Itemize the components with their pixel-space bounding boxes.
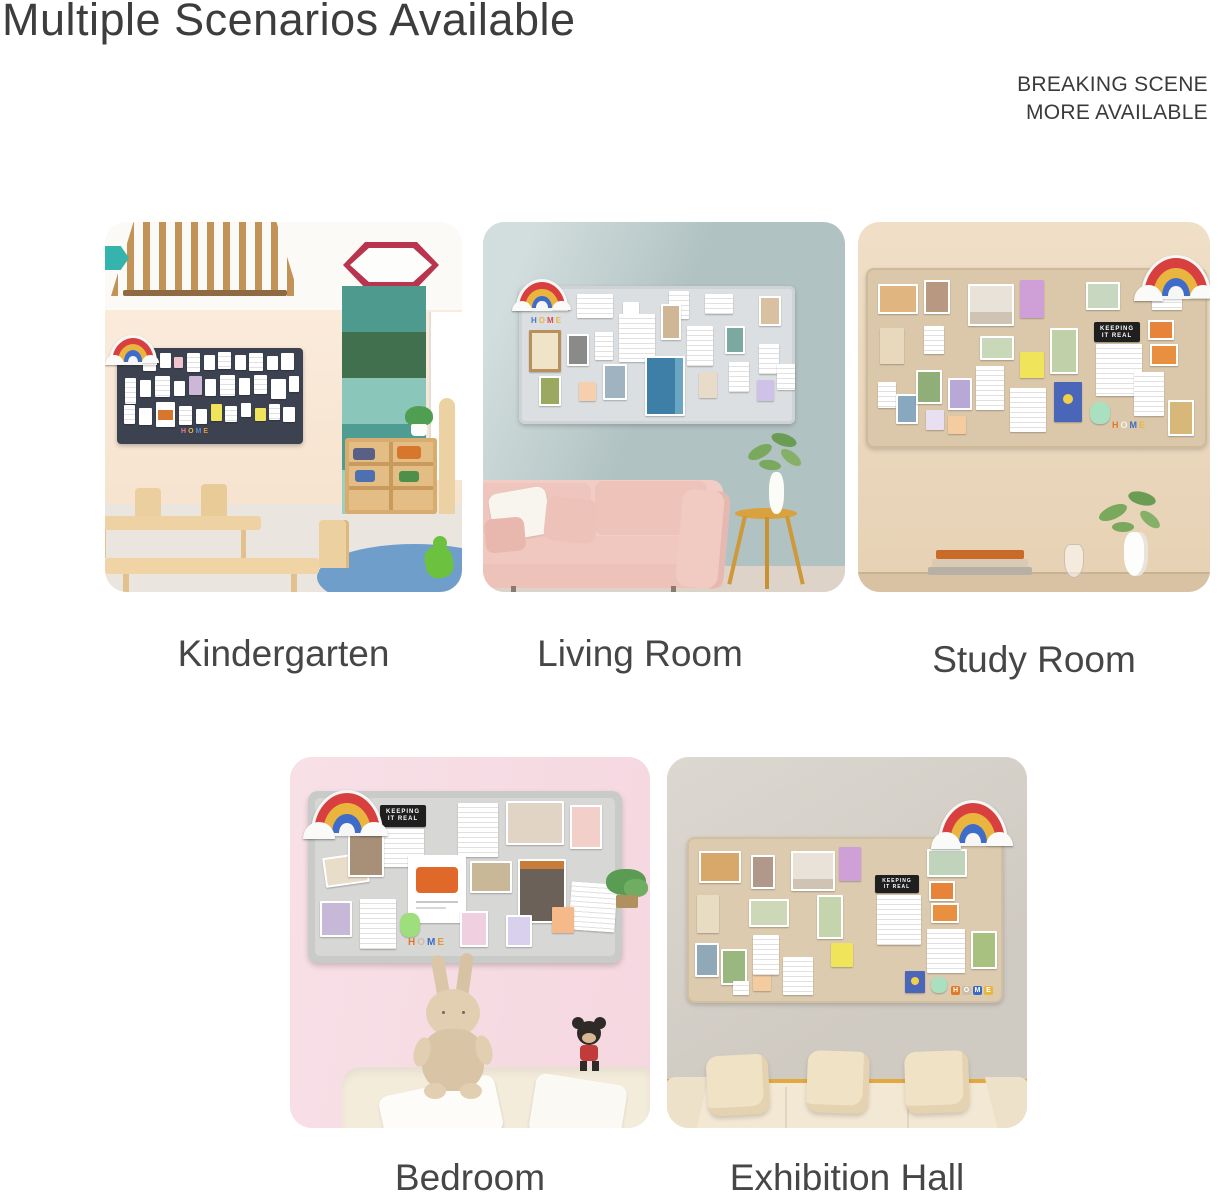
chair [319, 520, 349, 568]
pinned-card [241, 403, 251, 417]
pinned-card [880, 328, 904, 364]
bunny-plush [416, 979, 496, 1099]
pinned-photo [1050, 328, 1078, 374]
home-letters: HOME [951, 979, 995, 997]
home-letters: HOME [1112, 420, 1147, 430]
ghost-sticker [931, 977, 947, 993]
pinned-card [757, 380, 774, 401]
pinned-photo [603, 364, 627, 400]
pinned-card [619, 314, 655, 362]
pinned-card [1134, 372, 1164, 416]
pinned-photo [924, 280, 950, 314]
pinned-card [220, 375, 235, 396]
pinned-photo [759, 296, 781, 326]
book-stack [928, 550, 1032, 576]
sticky-note [948, 416, 966, 434]
product-image-canvas: Multiple Scenarios Available BREAKING SC… [0, 0, 1225, 1200]
toy-car [399, 471, 419, 482]
pinned-card [577, 294, 613, 318]
pinned-card [235, 355, 246, 370]
pinned-photo [721, 949, 747, 985]
toy-car [353, 448, 375, 460]
potted-plant [401, 406, 437, 440]
pinned-card [753, 935, 779, 975]
pinned-card [124, 405, 135, 424]
toy-car [355, 470, 375, 482]
pinned-photo [1086, 282, 1120, 310]
caption-exhibition-hall: Exhibition Hall [660, 1157, 1034, 1199]
sticky-note [552, 907, 574, 933]
scenario-photo-living-room: HOME [483, 222, 845, 592]
felt-board: HOME [519, 286, 795, 424]
page-title: Multiple Scenarios Available [2, 0, 576, 46]
felt-board: HOME [117, 348, 303, 444]
letter-board-sign: KEEPINGIT REAL [380, 805, 426, 827]
ghost-sticker [1090, 402, 1110, 424]
desk-surface [858, 574, 1210, 592]
pinned-card [187, 353, 200, 372]
pinned-card [125, 378, 136, 404]
pinned-card [156, 402, 175, 427]
kids-table [105, 558, 319, 592]
pink-pillow [484, 516, 527, 553]
green-toy-figure [423, 536, 459, 580]
pinned-card [189, 376, 202, 395]
corner-note-line1: BREAKING SCENE [1017, 71, 1208, 99]
pinned-card [687, 326, 713, 366]
pinned-photo [539, 376, 561, 406]
pinned-photo [927, 849, 967, 877]
pink-pillow [543, 495, 599, 544]
pinned-card [218, 352, 231, 369]
pinned-card [733, 981, 749, 995]
rainbow-sticker-icon [519, 282, 565, 308]
pinned-photo [896, 394, 918, 424]
throw-blanket [675, 488, 731, 590]
pinned-card [924, 326, 944, 354]
pinned-card [283, 407, 295, 422]
vase-with-plant [1094, 488, 1164, 576]
framed-card [529, 330, 561, 372]
pinned-card [458, 803, 498, 857]
pinned-card [196, 409, 207, 424]
home-letters: HOME [531, 316, 563, 325]
sticky-note [211, 404, 222, 421]
pinned-photo [968, 284, 1014, 326]
pinned-card [905, 971, 925, 993]
pinned-photo [695, 943, 719, 977]
pinned-photo [817, 895, 843, 939]
pinned-card [360, 899, 396, 949]
pinned-card [174, 381, 185, 396]
corner-note-line2: MORE AVAILABLE [1017, 99, 1208, 127]
pinned-card [777, 364, 795, 390]
pinned-card [1150, 344, 1178, 366]
pinned-card [281, 353, 294, 370]
rainbow-sticker-icon [112, 338, 154, 362]
pinned-card [697, 895, 719, 933]
pinned-card [1020, 280, 1044, 318]
pinned-card [204, 355, 215, 370]
pinned-card [506, 915, 532, 947]
sofa-pillow [904, 1050, 970, 1114]
corner-note: BREAKING SCENE MORE AVAILABLE [1017, 71, 1208, 127]
mickey-plush [570, 1017, 610, 1071]
pinned-photo [878, 284, 918, 314]
pinned-photo [916, 370, 942, 404]
home-letters: HOME [181, 428, 210, 435]
pinned-card [783, 957, 813, 995]
letter-board-sign: KEEPINGIT REAL [1094, 322, 1140, 342]
pinned-card [155, 376, 170, 397]
pinned-card [160, 353, 171, 368]
pinned-card [705, 294, 733, 314]
sofa-pillow [806, 1050, 870, 1114]
pinned-photo [506, 801, 564, 845]
pinned-card [460, 911, 488, 947]
pinned-card [267, 356, 278, 370]
sticky-note [831, 943, 853, 967]
pinned-card [570, 805, 602, 849]
caption-study-room: Study Room [858, 639, 1210, 681]
vase-with-plant [745, 428, 805, 514]
pinned-card [878, 382, 896, 408]
pinned-card [839, 847, 861, 881]
pinned-photo [751, 855, 775, 889]
notepad [877, 895, 921, 945]
wood-slat-ceiling [111, 222, 299, 296]
pinned-card [759, 344, 779, 374]
pinned-card [205, 379, 216, 396]
caption-living-room: Living Room [459, 633, 821, 675]
pinned-card [249, 353, 263, 371]
pinned-card [179, 406, 192, 425]
pinned-card [699, 372, 717, 398]
pinned-card [269, 404, 280, 420]
caption-bedroom: Bedroom [283, 1157, 657, 1199]
pinned-photo [1168, 400, 1194, 436]
pinned-photo [699, 851, 741, 883]
rainbow-sticker-icon [941, 803, 1005, 843]
pinned-card [140, 380, 151, 397]
caption-kindergarten: Kindergarten [105, 633, 462, 675]
pinned-photo [645, 356, 685, 416]
rainbow-sticker-icon [314, 793, 380, 833]
pinned-photo [320, 901, 352, 937]
scenario-photo-exhibition-hall: KEEPINGIT REAL HOME [667, 757, 1027, 1128]
wood-panel [439, 398, 455, 514]
toy-shelf [345, 438, 437, 514]
pinned-photo [725, 326, 745, 354]
pinned-card [174, 357, 183, 368]
pinned-photo [470, 861, 512, 893]
kids-table [105, 516, 261, 560]
sofa-pillow [705, 1053, 770, 1116]
pinned-card [139, 408, 152, 425]
pinned-card [595, 332, 613, 360]
pinned-photo [661, 304, 681, 340]
sticky-note [926, 410, 944, 430]
hanging-plant [604, 869, 650, 913]
home-letters: HOME [408, 937, 446, 948]
sticky-note [255, 408, 266, 421]
pinned-card [1054, 382, 1082, 422]
sticky-note [579, 382, 596, 401]
pinned-photo [348, 831, 384, 877]
pinned-photo [980, 336, 1014, 360]
rainbow-sticker-icon [1144, 258, 1208, 296]
pinned-card [1010, 388, 1046, 432]
pinned-card [225, 406, 237, 422]
pinned-card [976, 366, 1004, 410]
pinned-card [289, 376, 299, 392]
toy-car [397, 446, 421, 459]
pinned-photo [567, 334, 589, 366]
pinned-card [927, 929, 965, 973]
sticky-note [1020, 352, 1044, 378]
pinned-card [254, 375, 267, 394]
pinned-card [729, 362, 749, 392]
glass-decanter [1064, 544, 1084, 578]
letter-board-sign: KEEPINGIT REAL [875, 875, 919, 893]
wood-beam [123, 290, 287, 296]
felt-board: KEEPINGIT REAL HOME [687, 837, 1003, 1003]
pinned-card [929, 881, 955, 901]
side-stool [735, 508, 801, 592]
pinned-card [239, 378, 250, 395]
pinned-card [931, 903, 959, 923]
chair [201, 484, 227, 518]
sofa-photo-card [408, 855, 466, 923]
pinned-photo [971, 931, 997, 969]
scenario-photo-study-room: KEEPINGIT REAL HOME [858, 222, 1210, 592]
pinned-card [1148, 320, 1174, 340]
pinned-photo [749, 899, 789, 927]
pinned-card [271, 379, 286, 399]
ghost-sticker [400, 913, 420, 937]
pinned-photo [948, 378, 972, 410]
scenario-photo-bedroom: KEEPINGIT REAL HOME [290, 757, 650, 1128]
scenario-photo-kindergarten: HOME [105, 222, 462, 592]
pinned-photo [791, 851, 835, 891]
